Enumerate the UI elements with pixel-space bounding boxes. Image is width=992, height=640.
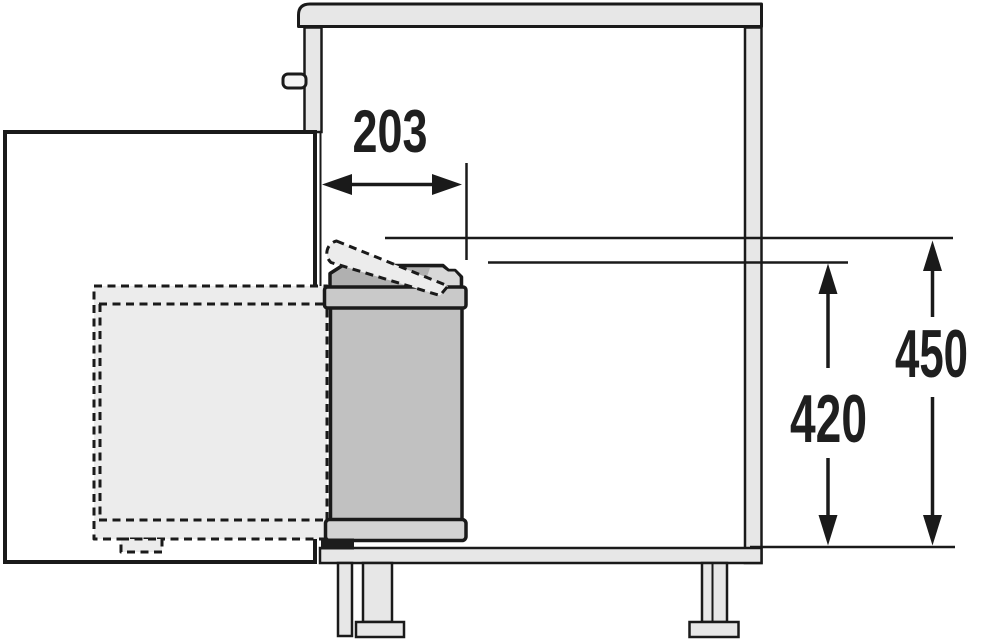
dimension-203-label: 203 bbox=[353, 98, 428, 165]
dimension-420: 420 bbox=[790, 264, 867, 546]
ghost-pedal bbox=[121, 539, 162, 552]
rear-leg bbox=[702, 563, 727, 622]
front-leg-foot bbox=[356, 622, 404, 637]
dimension-420-label: 420 bbox=[790, 381, 867, 457]
ghost-bin-swung-out bbox=[94, 286, 327, 552]
dimension-450: 450 bbox=[895, 241, 968, 546]
dimension-450-label: 450 bbox=[895, 316, 968, 392]
arrow-up-icon bbox=[923, 241, 942, 272]
rear-leg-foot bbox=[690, 622, 739, 637]
arrow-right-icon bbox=[432, 174, 462, 195]
dimension-reference-lines bbox=[385, 163, 955, 547]
countertop bbox=[299, 4, 762, 27]
front-leg bbox=[363, 563, 392, 622]
arrow-left-icon bbox=[322, 174, 352, 195]
right-side-panel bbox=[745, 28, 762, 564]
cabinet-waste-bin-diagram: 203 420 450 bbox=[0, 0, 992, 640]
waste-bin bbox=[321, 241, 466, 550]
dimension-203: 203 bbox=[322, 98, 462, 195]
arrow-up-icon bbox=[819, 264, 838, 295]
bin-pedal bbox=[321, 539, 354, 550]
hinge-pin bbox=[283, 74, 306, 88]
cabinet-bottom-panel bbox=[320, 548, 762, 563]
front-leg-bar bbox=[338, 563, 352, 636]
arrow-down-icon bbox=[819, 515, 838, 546]
arrow-down-icon bbox=[923, 515, 942, 546]
bin-body bbox=[331, 306, 463, 521]
technical-drawing-canvas: 203 420 450 bbox=[0, 0, 992, 640]
bin-base-ring bbox=[326, 520, 467, 541]
ghost-bin-outline bbox=[94, 286, 327, 539]
